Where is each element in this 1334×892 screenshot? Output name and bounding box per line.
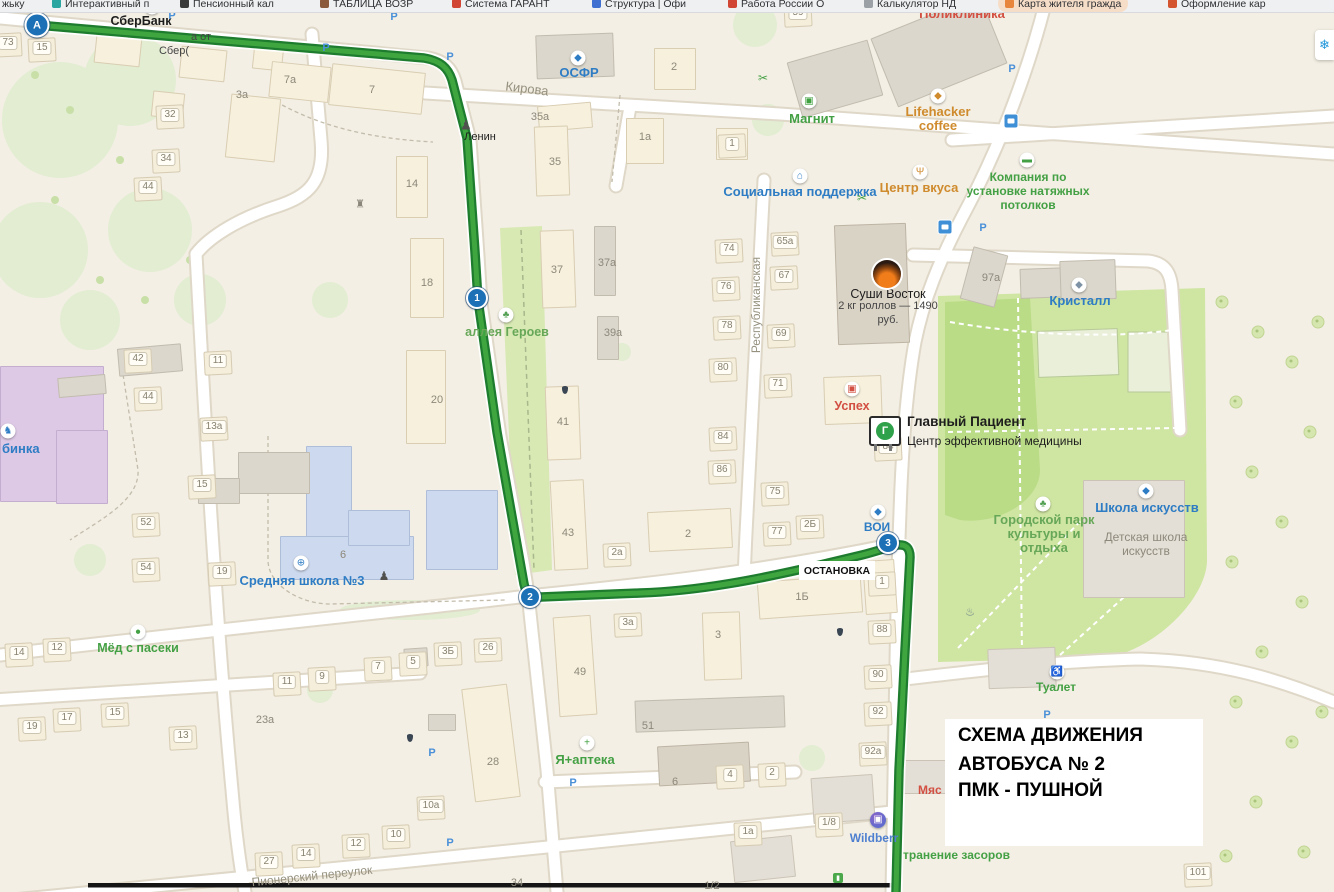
- billboard-leg: [889, 444, 892, 451]
- building-number-badge: 27: [259, 855, 278, 869]
- bookmark-favicon: [52, 0, 61, 8]
- poi-lifehacker: Lifehacker coffee: [905, 105, 970, 133]
- alley-tree-icon: ♣: [499, 308, 514, 323]
- building-number: 6: [340, 549, 346, 561]
- route-marker-А: А: [25, 13, 50, 38]
- school-statue-icon: ♟: [379, 570, 390, 582]
- poi-myas: Мяс: [918, 783, 942, 797]
- building-number: 35: [549, 156, 561, 168]
- pharmacy-cross-icon: +: [580, 736, 595, 751]
- billboard-leg: [874, 444, 877, 451]
- building-number-badge: 19: [22, 720, 41, 734]
- building-number-badge: 15: [192, 478, 211, 492]
- building-number-badge: 2а: [607, 546, 626, 560]
- shop-icon: ▣: [845, 382, 860, 397]
- building-number-badge: 19: [212, 565, 231, 579]
- building-number-badge: 92а: [861, 745, 886, 759]
- bookmark-favicon: [1005, 0, 1014, 8]
- building-number-badge: 26: [478, 641, 497, 655]
- building-number-badge: 1/8: [818, 816, 840, 830]
- parking-icon: P: [428, 747, 435, 759]
- bookmark-item[interactable]: Карта жителя гражда: [998, 0, 1128, 12]
- building-number-badge: 65а: [773, 235, 798, 249]
- building-number-badge: 4: [723, 768, 737, 782]
- building-number-badge: 69: [771, 327, 790, 341]
- rocking-horse-icon: ♞: [1, 424, 16, 439]
- billboard-letter: Г: [876, 422, 894, 440]
- bookmark-item[interactable]: жьку: [2, 0, 24, 12]
- bookmark-favicon: [728, 0, 737, 8]
- poi-sushi-sub: 2 кг роллов — 1490 руб.: [838, 299, 938, 327]
- building-number-badge: 101: [1186, 866, 1211, 880]
- school-globe-icon: ⊕: [294, 556, 309, 571]
- building-number-badge: 92: [868, 705, 887, 719]
- building-number: 6: [672, 776, 678, 788]
- building-number-badge: 5: [406, 655, 420, 669]
- poi-ya-apteka: Я+аптека: [555, 753, 614, 767]
- building-number: 3а: [236, 89, 248, 101]
- scissors-icon: ✂: [758, 72, 768, 84]
- building-number: 39а: [604, 327, 622, 339]
- building-number-badge: 42: [128, 352, 147, 366]
- poi-soc-podderzhka: Социальная поддержка: [723, 185, 876, 199]
- bookmark-favicon: [320, 0, 329, 8]
- building-number: 1а: [639, 131, 651, 143]
- building-number-badge: 17: [57, 711, 76, 725]
- parking-icon: P: [446, 51, 453, 63]
- building-number: 43: [562, 527, 574, 539]
- poi-zasory: транение засоров: [903, 848, 1010, 862]
- building-number-badge: 44: [138, 180, 157, 194]
- building-number-badge: 2Б: [800, 518, 820, 532]
- bookmark-label: Оформление кар: [1181, 0, 1266, 10]
- parking-icon: P: [1008, 63, 1015, 75]
- building-number: 37а: [598, 257, 616, 269]
- sushi-vostok-logo: [873, 260, 901, 288]
- building-number-badge: 2: [765, 766, 779, 780]
- parking-icon: P: [569, 777, 576, 789]
- schema-line-3: ПМК - ПУШНОЙ: [958, 780, 1103, 802]
- honey-icon: ●: [131, 625, 146, 640]
- social-house-icon: ⌂: [793, 169, 808, 184]
- bookmark-item[interactable]: Оформление кар: [1168, 0, 1266, 12]
- building-number: 51: [642, 720, 654, 732]
- bookmark-favicon: [864, 0, 873, 8]
- building-number-badge: 74: [719, 242, 738, 256]
- lenin-monument-icon: ♟: [460, 119, 472, 132]
- poi-alleya-geroev: аллея Героев: [465, 325, 549, 339]
- scissors-icon: ✂: [857, 192, 867, 204]
- building-number: 2: [685, 528, 691, 540]
- poi-sber-ad-line2: Сбер(: [159, 44, 189, 58]
- monument-icon: ♜: [355, 200, 365, 211]
- park-tree-icon: ♣: [1036, 497, 1051, 512]
- building-number-badge: 76: [716, 280, 735, 294]
- bookmark-item[interactable]: Пенсионный кал: [180, 0, 274, 12]
- poi-gorodskoy-park: Городской парк культуры и отдыха: [993, 513, 1094, 555]
- bookmark-item[interactable]: Система ГАРАНТ: [452, 0, 550, 12]
- bookmark-favicon: [452, 0, 461, 8]
- building-number: 7: [369, 84, 375, 96]
- schema-title-box: СХЕМА ДВИЖЕНИЯ АВТОБУСА № 2 ПМК - ПУШНОЙ: [945, 719, 1203, 846]
- building-number-badge: 78: [717, 319, 736, 333]
- bus-stop-label-text: ОСТАНОВКА: [804, 565, 870, 577]
- poi-srednyaya-shkola-3: Средняя школа №3: [239, 574, 364, 588]
- schema-line-1: СХЕМА ДВИЖЕНИЯ: [958, 725, 1143, 747]
- paint-roller-icon: ▬: [1020, 153, 1035, 168]
- building-number-badge: 34: [156, 152, 175, 166]
- voi-icon: ◆: [871, 505, 886, 520]
- bookmark-item[interactable]: Работа России О: [728, 0, 824, 12]
- building-number-badge: 14: [9, 646, 28, 660]
- building-number: 35а: [531, 111, 549, 123]
- building-number: 7а: [284, 74, 296, 86]
- glavny-patsient-billboard-icon: Г: [869, 416, 901, 446]
- wildberries-icon: ▣: [870, 812, 886, 828]
- building-number-badge: 1: [875, 575, 889, 589]
- osfr-icon: ◆: [571, 51, 586, 66]
- bookmark-favicon: [592, 0, 601, 8]
- building-number-badge: 52: [136, 516, 155, 530]
- poi-sber-ad-line1: а от: [191, 30, 211, 44]
- poi-med-s-paseki: Мёд с пасеки: [97, 641, 179, 655]
- wc-icon: ♿: [1050, 665, 1065, 680]
- bookmark-label: Интерактивный п: [65, 0, 149, 10]
- building-number-badge: 13а: [202, 420, 227, 434]
- poi-detskaya-shkola: Детская школа искусств: [1105, 530, 1188, 558]
- bus-stop-icon: [1004, 114, 1019, 129]
- building-number-badge: 3Б: [438, 645, 458, 659]
- browser-bookmarks-bar: жькуИнтерактивный пПенсионный калТАБЛИЦА…: [0, 0, 1334, 13]
- building-number-badge: 13: [173, 729, 192, 743]
- lifehacker-icon: ◆: [931, 89, 946, 104]
- poi-wildberries: Wildberr: [850, 831, 899, 845]
- building-number: 1Б: [795, 591, 808, 603]
- poi-tualet: Туалет: [1036, 680, 1076, 694]
- building-number: 1/2: [704, 880, 719, 892]
- building-number: 2: [671, 61, 677, 73]
- building-number: 34: [511, 877, 523, 889]
- route-marker-1: 1: [466, 287, 488, 309]
- building-number: 14: [406, 178, 418, 190]
- building-number-badge: 7: [371, 660, 385, 674]
- building-number-badge: 1а: [738, 825, 757, 839]
- parking-icon: P: [979, 222, 986, 234]
- poi-centr-vkusa: Центр вкуса: [880, 181, 959, 195]
- poi-glavny-patsient: Главный Пациент: [907, 415, 1026, 429]
- poi-magnit: Магнит: [789, 112, 835, 126]
- building-number-badge: 12: [346, 837, 365, 851]
- layers-control-snowflake-icon[interactable]: ❄: [1315, 30, 1334, 60]
- building-number-badge: 15: [32, 41, 51, 55]
- building-number-badge: 12: [47, 641, 66, 655]
- building-number-badge: 75: [765, 485, 784, 499]
- building-number-badge: 67: [774, 269, 793, 283]
- building-number: 49: [574, 666, 586, 678]
- bookmark-item[interactable]: ТАБЛИЦА ВОЗР: [320, 0, 413, 12]
- building-number-badge: 11: [209, 354, 227, 368]
- fountain-icon: ♨: [965, 608, 975, 619]
- parking-icon: P: [446, 837, 453, 849]
- schema-line-2: АВТОБУСА № 2: [958, 754, 1105, 776]
- building-number: 23а: [256, 714, 274, 726]
- street-kirova: Кирова: [505, 79, 550, 98]
- restaurant-icon: Ψ: [913, 165, 928, 180]
- building-number-badge: 77: [767, 525, 786, 539]
- map-canvas[interactable]: Г ОСТАНОВКА 731532344442441113а155254191…: [0, 0, 1334, 892]
- building-number: 97а: [982, 272, 1000, 284]
- building-number-badge: 84: [713, 430, 732, 444]
- bookmark-label: Пенсионный кал: [193, 0, 274, 10]
- bookmark-item[interactable]: Структура | Офи: [592, 0, 686, 12]
- bookmark-item[interactable]: Калькулятор НД: [864, 0, 956, 12]
- poi-sberbank: СберБанк: [111, 14, 172, 28]
- bookmark-item[interactable]: Интерактивный п: [52, 0, 149, 12]
- building-number-badge: 14: [296, 847, 315, 861]
- bookmark-label: Карта жителя гражда: [1018, 0, 1121, 10]
- building-number-badge: 1: [725, 137, 739, 151]
- bookmark-label: Калькулятор НД: [877, 0, 956, 10]
- bookmark-favicon: [1168, 0, 1177, 8]
- parking-icon: P: [322, 42, 329, 54]
- billboard-frame: Г: [869, 416, 901, 446]
- building-number: 28: [487, 756, 499, 768]
- water-drop-icon: [562, 386, 568, 394]
- building-number-badge: 15: [105, 706, 124, 720]
- building-number-badge: 90: [868, 668, 887, 682]
- poi-glavny-patsient-sub: Центр эффективной медицины: [907, 434, 1082, 448]
- building-number-badge: 88: [872, 623, 891, 637]
- building-number: 20: [431, 394, 443, 406]
- bus-stop-icon: [938, 220, 953, 235]
- building-number: 18: [421, 277, 433, 289]
- building-number: 37: [551, 264, 563, 276]
- skates-icon: ◆: [1072, 278, 1087, 293]
- building-number-badge: 10: [386, 828, 405, 842]
- snowflake-glyph: ❄: [1319, 37, 1330, 53]
- poi-uspeh: Успех: [834, 399, 869, 413]
- building-number-badge: 9: [315, 670, 329, 684]
- building-number-badge: 86: [712, 463, 731, 477]
- water-drop-icon: [837, 628, 843, 636]
- building-number-badge: 11: [278, 675, 296, 689]
- poi-ryabinka: бинка: [2, 442, 40, 456]
- bookmark-favicon: [180, 0, 189, 8]
- bus-stop-label: ОСТАНОВКА: [799, 561, 875, 580]
- poi-shkola-iskusstv: Школа искусств: [1095, 501, 1199, 515]
- building-number-badge: 3а: [618, 616, 637, 630]
- building-number-badge: 32: [160, 108, 179, 122]
- building-number-badge: 54: [136, 561, 155, 575]
- poi-osfr: ОСФР: [559, 66, 598, 80]
- bookmark-label: жьку: [2, 0, 24, 10]
- building-number: 41: [557, 416, 569, 428]
- building-number-badge: 80: [713, 361, 732, 375]
- magnit-cart-icon: ▣: [802, 94, 817, 109]
- street-respublikanskaya: Республиканская: [749, 257, 763, 353]
- route-marker-3: 3: [877, 532, 899, 554]
- building-number: 3: [715, 629, 721, 641]
- bag-icon: ▮: [833, 873, 843, 883]
- bookmark-label: Система ГАРАНТ: [465, 0, 550, 10]
- building-number-badge: 73: [0, 36, 18, 50]
- poi-kristall: Кристалл: [1049, 294, 1110, 308]
- building-number-badge: 44: [138, 390, 157, 404]
- poi-potolki: Компания по установке натяжных потолков: [966, 170, 1089, 212]
- water-drop-icon: [407, 734, 413, 742]
- art-school-icon: ◆: [1139, 484, 1154, 499]
- bookmark-label: Структура | Офи: [605, 0, 686, 10]
- bookmark-label: ТАБЛИЦА ВОЗР: [333, 0, 413, 10]
- building-number-badge: 10а: [419, 799, 444, 813]
- bookmark-label: Работа России О: [741, 0, 824, 10]
- route-marker-2: 2: [519, 586, 541, 608]
- building-number-badge: 71: [768, 377, 787, 391]
